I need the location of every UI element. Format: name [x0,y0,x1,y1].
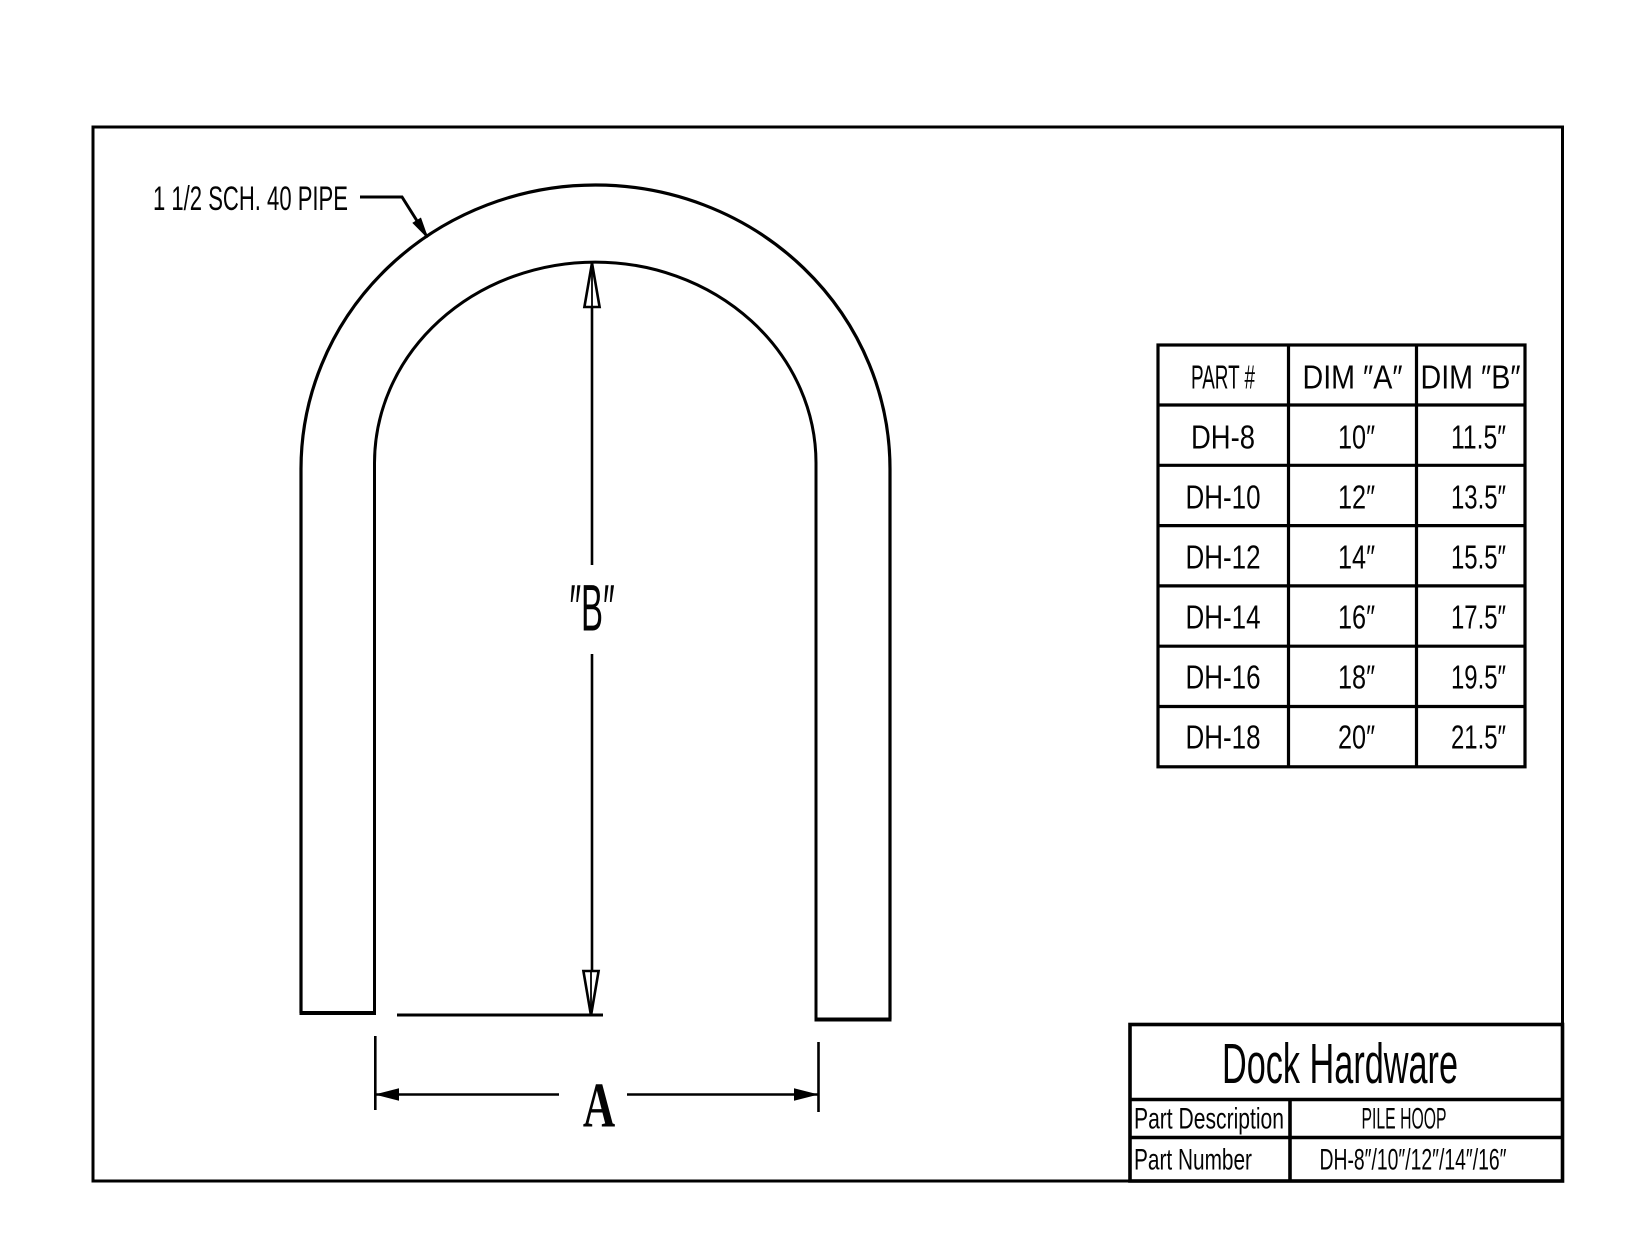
svg-text:18″: 18″ [1338,659,1375,696]
svg-text:DIM ″B″: DIM ″B″ [1421,359,1521,396]
svg-text:DIM ″A″: DIM ″A″ [1303,359,1403,396]
svg-text:1 1/2 SCH. 40 PIPE: 1 1/2 SCH. 40 PIPE [153,180,348,218]
svg-text:DH-16: DH-16 [1186,659,1261,696]
svg-text:15.5″: 15.5″ [1451,539,1506,576]
svg-text:13.5″: 13.5″ [1451,479,1506,516]
svg-text:20″: 20″ [1338,719,1375,756]
svg-text:Dock Hardware: Dock Hardware [1222,1032,1458,1096]
svg-text:A: A [583,1070,616,1140]
svg-text:DH-18: DH-18 [1186,719,1261,756]
svg-text:10″: 10″ [1338,419,1375,456]
svg-text:DH-8: DH-8 [1191,419,1255,456]
svg-text:21.5″: 21.5″ [1451,719,1506,756]
svg-text:DH-14: DH-14 [1186,599,1261,636]
svg-text:16″: 16″ [1338,599,1375,636]
svg-text:11.5″: 11.5″ [1451,419,1506,456]
svg-text:Part Description: Part Description [1134,1103,1284,1136]
svg-text:DH-12: DH-12 [1186,539,1261,576]
svg-text:17.5″: 17.5″ [1451,599,1506,636]
svg-text:14″: 14″ [1338,539,1375,576]
svg-text:19.5″: 19.5″ [1451,659,1506,696]
svg-text:PILE HOOP: PILE HOOP [1362,1103,1447,1136]
svg-text:DH-8″/10″/12″/14″/16″: DH-8″/10″/12″/14″/16″ [1320,1144,1507,1177]
svg-text:12″: 12″ [1338,479,1375,516]
svg-text:″B″: ″B″ [569,572,614,645]
svg-text:DH-10: DH-10 [1186,479,1261,516]
svg-text:Part Number: Part Number [1134,1144,1252,1177]
svg-text:PART #: PART # [1191,359,1255,396]
